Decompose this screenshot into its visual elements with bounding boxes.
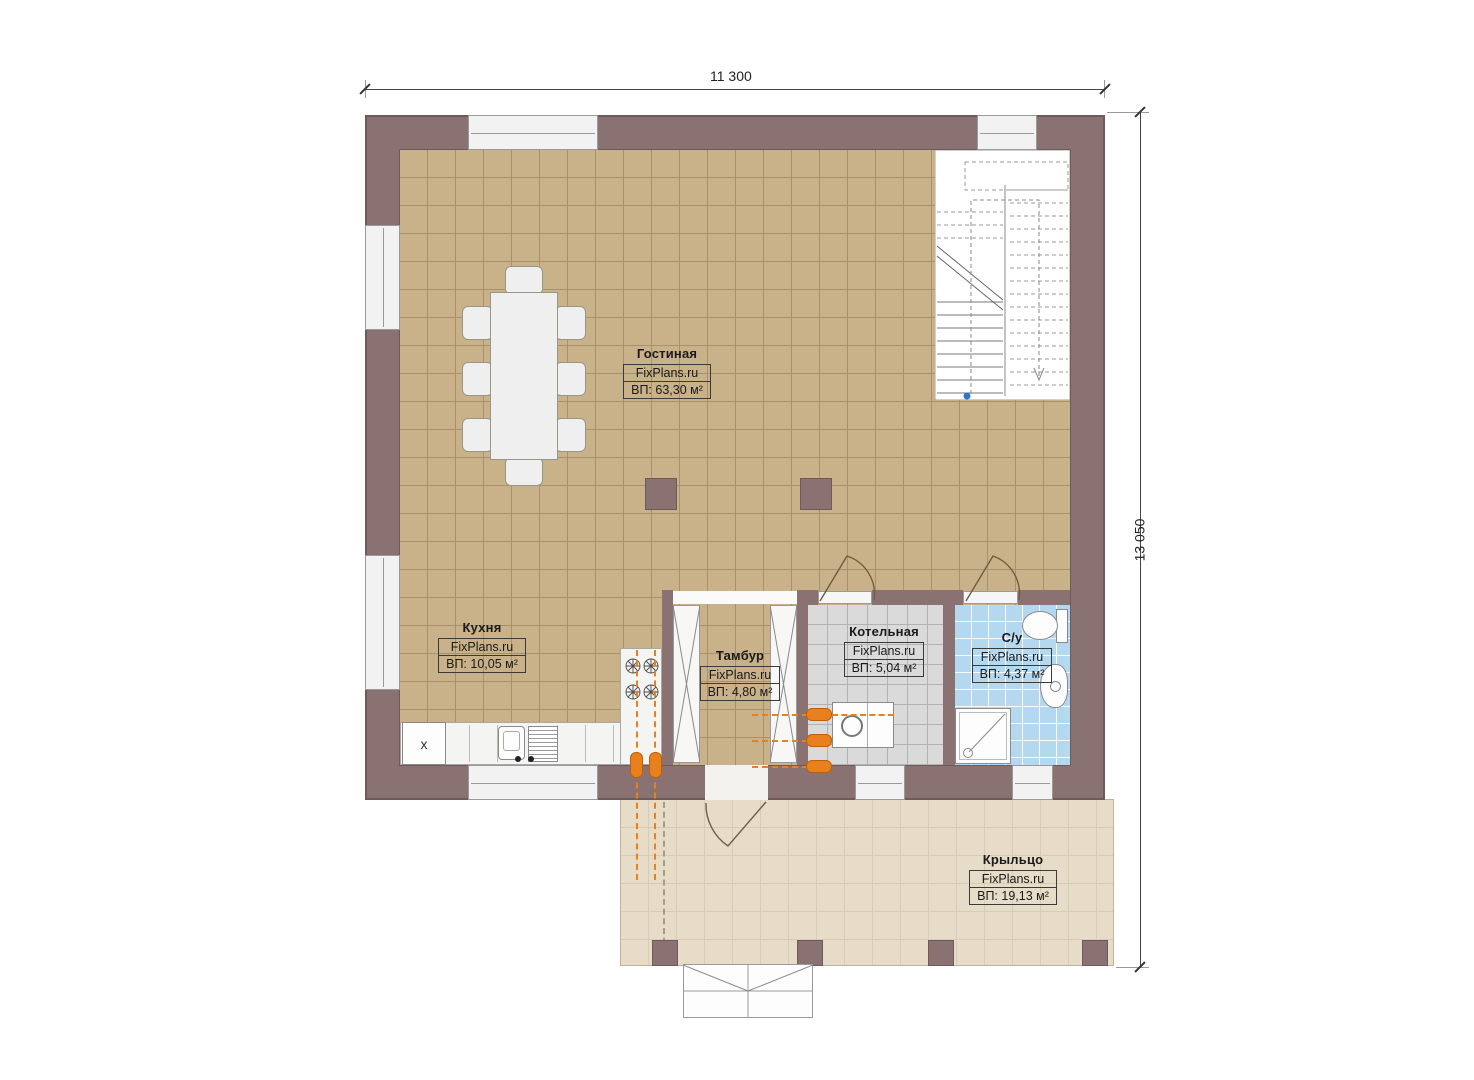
bathroom-door-sill (963, 591, 1018, 604)
structural-column (645, 478, 677, 510)
chair (555, 306, 586, 340)
heating-pipe-dashed (832, 714, 894, 716)
staircase (935, 150, 1070, 400)
room-name: С/у (932, 630, 1092, 645)
chair (555, 418, 586, 452)
dimension-extension (1107, 112, 1149, 113)
room-info-box: FixPlans.ru ВП: 19,13 м² (969, 870, 1057, 905)
floorplan-canvas: 11 300 13 050 (0, 0, 1474, 1080)
room-label-kitchen: Кухня FixPlans.ru ВП: 10,05 м² (402, 620, 562, 673)
faucet-dot (515, 756, 521, 762)
room-name: Кухня (402, 620, 562, 635)
window-boiler (855, 765, 905, 800)
radiator (806, 708, 832, 721)
room-area: ВП: 5,04 м² (845, 660, 924, 676)
dimension-line-top (365, 89, 1105, 90)
room-label-living: Гостиная FixPlans.ru ВП: 63,30 м² (587, 346, 747, 399)
room-name: Тамбур (660, 648, 820, 663)
interior-wall (808, 590, 818, 605)
structural-column (800, 478, 832, 510)
porch-steps (683, 964, 813, 1019)
window-kitchen (468, 765, 598, 800)
porch-column (797, 940, 823, 966)
room-info-box: FixPlans.ru ВП: 10,05 м² (438, 638, 526, 673)
room-brand: FixPlans.ru (439, 639, 525, 656)
room-area: ВП: 4,37 м² (973, 666, 1052, 682)
room-label-tambour: Тамбур FixPlans.ru ВП: 4,80 м² (660, 648, 820, 701)
window-top-stairs (977, 115, 1037, 150)
dimension-extension (1116, 967, 1149, 968)
room-label-bathroom: С/у FixPlans.ru ВП: 4,37 м² (932, 630, 1092, 683)
room-area: ВП: 19,13 м² (970, 888, 1056, 904)
radiator (806, 734, 832, 747)
chair (462, 362, 493, 396)
room-brand: FixPlans.ru (624, 365, 710, 382)
interior-wall (1018, 590, 1070, 605)
boiler-unit (832, 702, 894, 748)
heating-pipe-dashed (752, 766, 808, 768)
radiator (806, 760, 832, 773)
chair (462, 418, 493, 452)
porch-boundary-dashed (663, 802, 665, 963)
porch-column (1082, 940, 1108, 966)
radiator (649, 752, 662, 778)
interior-wall (955, 590, 963, 605)
boiler-door-sill (818, 591, 872, 604)
shower-tray (955, 708, 1011, 764)
porch-column (652, 940, 678, 966)
faucet-dot (528, 756, 534, 762)
heating-pipe-dashed (752, 740, 808, 742)
heating-pipe-dashed (752, 714, 808, 716)
interior-wall (872, 590, 943, 605)
chair (462, 306, 493, 340)
tambour-opening (673, 591, 797, 604)
window-top-living (468, 115, 598, 150)
radiator (630, 752, 643, 778)
room-info-box: FixPlans.ru ВП: 4,37 м² (972, 648, 1053, 683)
room-brand: FixPlans.ru (845, 643, 924, 660)
dining-table (490, 292, 558, 460)
dimension-height-label: 13 050 (1131, 519, 1147, 562)
window-left-lower (365, 555, 400, 690)
room-area: ВП: 63,30 м² (624, 382, 710, 398)
dimension-width-label: 11 300 (710, 68, 752, 84)
room-brand: FixPlans.ru (973, 649, 1052, 666)
room-brand: FixPlans.ru (701, 667, 780, 684)
chair (505, 457, 543, 486)
chair (505, 266, 543, 295)
room-info-box: FixPlans.ru ВП: 63,30 м² (623, 364, 711, 399)
cabinet-marker-label: x (421, 736, 428, 752)
chair (555, 362, 586, 396)
porch-door-opening (705, 765, 768, 800)
stair-level-marker (964, 393, 971, 400)
room-label-porch: Крыльцо FixPlans.ru ВП: 19,13 м² (923, 852, 1103, 905)
kitchen-cabinet-x: x (402, 722, 446, 765)
window-left-upper (365, 225, 400, 330)
stove-hob (622, 652, 662, 708)
porch-column (928, 940, 954, 966)
room-info-box: FixPlans.ru ВП: 5,04 м² (844, 642, 925, 677)
room-area: ВП: 4,80 м² (701, 684, 780, 700)
kitchen-sink (498, 726, 525, 760)
room-info-box: FixPlans.ru ВП: 4,80 м² (700, 666, 781, 701)
room-brand: FixPlans.ru (970, 871, 1056, 888)
window-bathroom (1012, 765, 1053, 800)
room-area: ВП: 10,05 м² (439, 656, 525, 672)
room-name: Гостиная (587, 346, 747, 361)
room-name: Крыльцо (923, 852, 1103, 867)
